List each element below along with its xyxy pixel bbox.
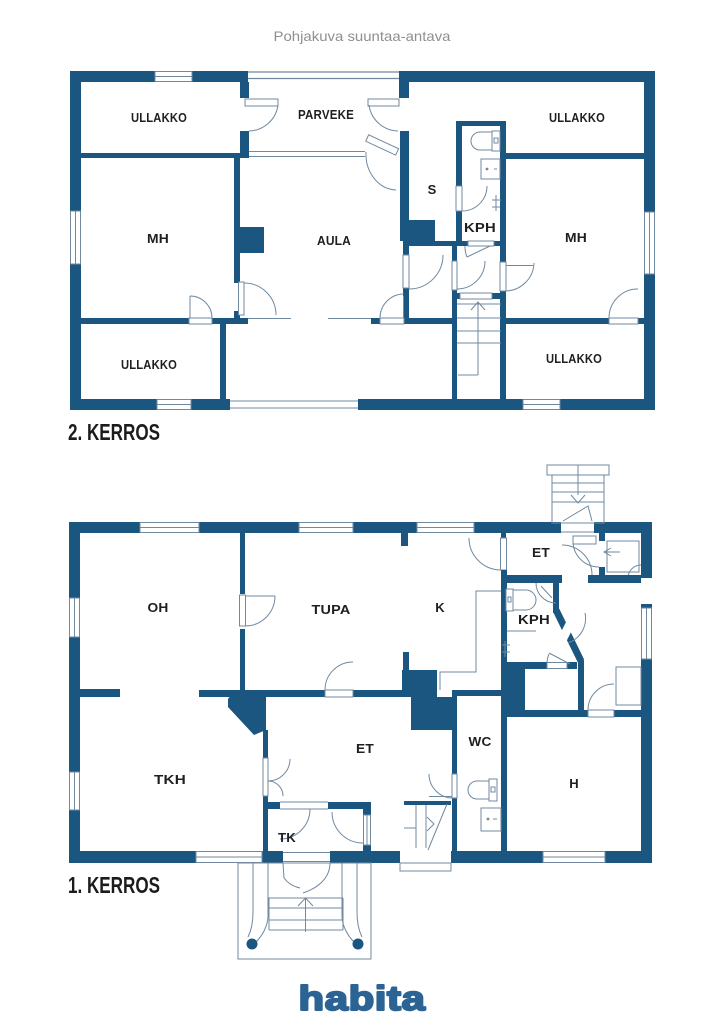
svg-text:S: S [428, 182, 437, 197]
svg-text:MH: MH [147, 231, 169, 246]
svg-text:OH: OH [148, 600, 169, 615]
svg-text:PARVEKE: PARVEKE [298, 107, 354, 122]
svg-text:ET: ET [532, 545, 550, 560]
svg-text:AULA: AULA [317, 233, 351, 248]
svg-text:Pohjakuva suuntaa-antava: Pohjakuva suuntaa-antava [274, 28, 451, 44]
svg-text:habita: habita [299, 980, 427, 1018]
svg-text:ULLAKKO: ULLAKKO [121, 357, 177, 372]
svg-text:K: K [435, 600, 445, 615]
svg-text:TKH: TKH [154, 772, 186, 787]
svg-text:TK: TK [278, 830, 296, 845]
svg-text:KPH: KPH [464, 220, 496, 235]
svg-text:1. KERROS: 1. KERROS [68, 872, 160, 898]
svg-text:ULLAKKO: ULLAKKO [131, 110, 187, 125]
svg-text:ULLAKKO: ULLAKKO [546, 351, 602, 366]
svg-text:H: H [569, 776, 579, 791]
svg-text:2. KERROS: 2. KERROS [68, 419, 160, 445]
svg-text:WC: WC [469, 734, 492, 749]
svg-text:ET: ET [356, 741, 374, 756]
svg-text:ULLAKKO: ULLAKKO [549, 110, 605, 125]
svg-text:MH: MH [565, 230, 587, 245]
svg-text:KPH: KPH [518, 612, 550, 627]
svg-text:TUPA: TUPA [312, 602, 351, 617]
